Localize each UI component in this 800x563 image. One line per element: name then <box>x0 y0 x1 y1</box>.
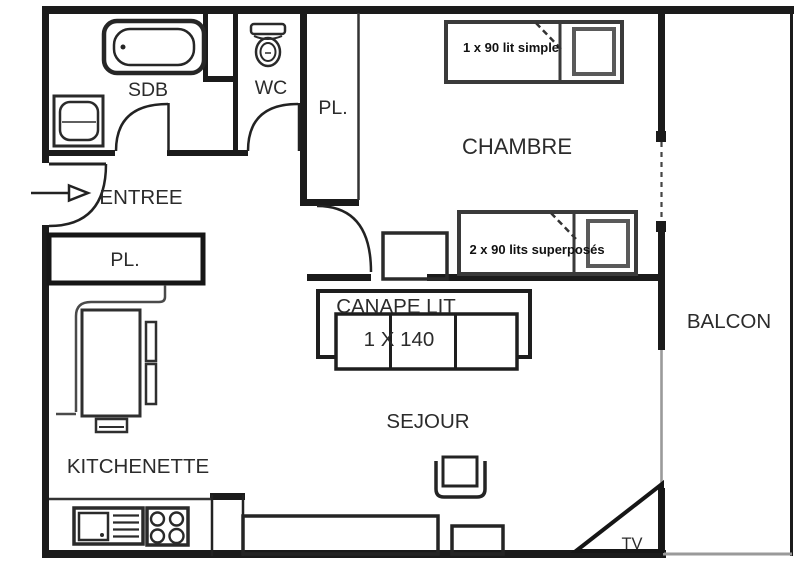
toilet-bowl-inner <box>261 43 276 61</box>
windows <box>662 6 793 556</box>
washbasin-cabinet <box>54 96 103 146</box>
toilet-tank <box>251 24 285 34</box>
sideboard-small <box>452 526 503 554</box>
bathtub <box>104 21 204 73</box>
label-kitchenette: KITCHENETTE <box>67 455 209 478</box>
wall-hall-south <box>307 274 371 281</box>
floor-plan: SDB WC PL. ENTREE PL. CHAMBRE BALCON SEJ… <box>0 0 800 563</box>
dining-chair-right-2 <box>146 364 156 404</box>
label-wc: WC <box>255 77 288 99</box>
label-entree: ENTREE <box>99 186 182 209</box>
label-sofa-name: CANAPE LIT <box>336 295 456 318</box>
washbasin-bowl <box>60 102 98 140</box>
dining-table <box>82 310 140 416</box>
tv-stand <box>576 484 662 551</box>
wall-sdb-step <box>203 76 237 82</box>
labels: SDB WC PL. ENTREE PL. CHAMBRE BALCON SEJ… <box>67 40 771 553</box>
wall-sdb-wc-bottom <box>167 150 248 156</box>
toilet <box>251 24 285 66</box>
sejour-furniture <box>243 457 662 554</box>
wall-balcony-jamb-2 <box>656 221 666 232</box>
dining-set <box>82 310 156 432</box>
chambre-door-arc <box>317 206 371 272</box>
kitchen-zone <box>56 285 165 414</box>
stove-burner-3 <box>151 530 164 543</box>
wall-closet-hall-bottom <box>300 199 359 206</box>
kitchen-sink-drain <box>100 533 104 537</box>
label-sofa-size: 1 X 140 <box>364 328 435 351</box>
label-bunk-bed: 2 x 90 lits superposés <box>469 242 604 257</box>
entry-arrow-icon <box>31 186 88 201</box>
wall-left-upper <box>42 6 49 163</box>
label-closet-entry: PL. <box>110 249 139 271</box>
bedside-unit <box>383 233 447 279</box>
label-tv: TV <box>621 535 642 553</box>
sdb-door-arc <box>116 104 168 151</box>
armchair <box>436 457 485 497</box>
chambre-door <box>317 206 371 272</box>
kitchen-zone-line <box>76 285 165 412</box>
label-sejour: SEJOUR <box>386 410 469 433</box>
dining-chair-right-1 <box>146 322 156 361</box>
label-bed-single: 1 x 90 lit simple <box>463 40 559 55</box>
bathtub-inner <box>114 29 194 65</box>
sideboard-long <box>243 516 438 554</box>
wall-wc-right <box>300 13 307 206</box>
wall-wc-left <box>233 13 238 154</box>
label-balcon: BALCON <box>687 310 771 333</box>
stove <box>147 508 188 545</box>
wall-balcony-mid <box>658 232 665 350</box>
dining-chair-bottom <box>96 419 127 432</box>
wall-top <box>42 6 794 14</box>
bunk-bed-fold-mark <box>551 213 576 239</box>
bathtub-faucet <box>121 45 126 50</box>
wc-door-arc <box>248 104 298 151</box>
kitchen-counter <box>49 495 243 556</box>
wall-kitchen-pillar-cap <box>210 493 245 500</box>
wall-sdb-bottom-west <box>42 150 115 156</box>
label-closet-hall: PL. <box>318 97 347 119</box>
wall-balcony-upper <box>658 6 665 133</box>
stove-burner-2 <box>170 513 183 526</box>
wall-balcony-jamb-1 <box>656 131 666 142</box>
floor-plan-svg: SDB WC PL. ENTREE PL. CHAMBRE BALCON SEJ… <box>0 0 800 563</box>
stove-burner-1 <box>151 513 164 526</box>
entry-arrow-head <box>69 186 88 201</box>
sdb-door <box>116 103 169 151</box>
washbasin <box>54 96 103 146</box>
kitchen-sink-unit <box>74 508 143 544</box>
stove-burner-4 <box>170 529 184 543</box>
armchair-seat <box>443 457 477 486</box>
label-sdb: SDB <box>128 79 168 101</box>
label-chambre: CHAMBRE <box>462 134 572 159</box>
wc-door <box>248 103 299 151</box>
bed-single-pillow <box>574 29 614 74</box>
